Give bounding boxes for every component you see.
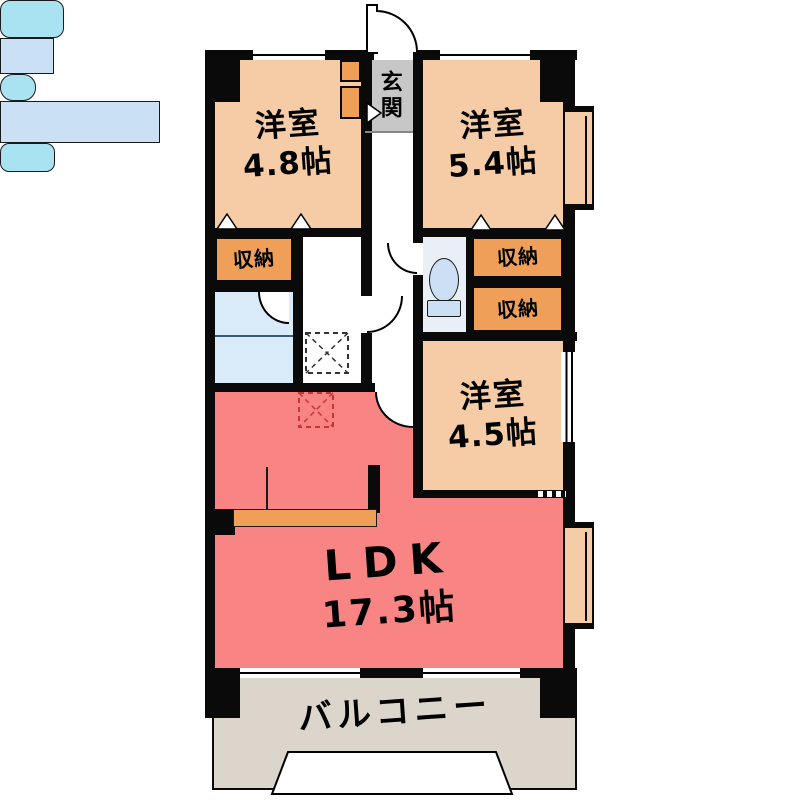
sliding-opening-marker <box>538 491 566 497</box>
closet-label: 収納 <box>472 286 563 332</box>
room-size: 17.3帖 <box>320 584 458 638</box>
bay-cap <box>563 204 594 210</box>
pipe-space-marker <box>297 391 335 429</box>
window-balcony-right <box>423 668 520 678</box>
entrance-door-arc <box>376 10 418 52</box>
closet-label: 収納 <box>472 237 563 278</box>
bay-window-glass-line <box>585 116 587 204</box>
bathtub-icon <box>0 0 64 38</box>
bedroom-1-label: 洋室 4.8帖 <box>215 70 361 220</box>
bay-window-bedroom-2 <box>563 110 594 210</box>
wall-segment <box>413 50 423 340</box>
toilet-icon <box>429 258 459 302</box>
bay-window-ldk <box>563 526 594 627</box>
bathroom-divider <box>215 335 293 337</box>
entrance-step-line <box>365 131 413 133</box>
room-name: 洋室 <box>254 104 323 147</box>
window-balcony-left <box>240 668 360 678</box>
room-name: 洋室 <box>459 104 528 147</box>
washing-machine-pan-icon <box>304 331 350 375</box>
bay-window-glass-line <box>585 532 587 621</box>
bay-cap <box>563 106 594 112</box>
wall-segment <box>563 625 575 668</box>
room-size: 4.8帖 <box>242 142 334 187</box>
bay-cap <box>563 522 594 528</box>
wall-segment <box>413 341 423 498</box>
bedroom-3-label: 洋室 4.5帖 <box>423 348 563 484</box>
room-name: 洋室 <box>459 375 528 418</box>
kitchen-wall-stub <box>368 465 380 513</box>
room-name: LDK <box>322 532 456 593</box>
sink-icon <box>0 74 36 101</box>
window-top-left <box>253 50 325 60</box>
room-size: 5.4帖 <box>447 142 539 187</box>
wall-segment <box>293 228 303 392</box>
bay-cap <box>563 623 594 629</box>
kitchen-sink-icon <box>0 143 55 172</box>
entrance-label: 玄関 <box>365 60 413 131</box>
closet-label: 収納 <box>215 237 293 282</box>
wall-segment <box>466 278 563 286</box>
ldk-label: LDK 17.3帖 <box>215 520 563 650</box>
wall-segment <box>563 50 575 112</box>
window-top-right <box>440 50 530 60</box>
washbasin-panel <box>0 38 54 74</box>
wall-segment <box>360 668 423 678</box>
balcony-notch <box>266 748 518 796</box>
floor-plan: 洋室 4.8帖 洋室 5.4帖 洋室 4.5帖 LDK 17.3帖 玄関 収納 … <box>0 0 800 800</box>
wall-segment <box>205 282 303 292</box>
kitchen-counter <box>0 101 160 143</box>
balcony-label: バルコニー <box>240 685 550 740</box>
kitchen-counter-divider <box>266 467 268 509</box>
room-size: 4.5帖 <box>447 413 539 458</box>
toilet-tank <box>427 300 461 317</box>
door-opening <box>375 383 413 392</box>
wall-segment <box>205 383 375 392</box>
wall-segment <box>563 442 575 528</box>
wall-segment <box>413 332 577 341</box>
bedroom-2-label: 洋室 5.4帖 <box>423 70 563 220</box>
window-bedroom-3 <box>561 352 577 442</box>
entrance-name: 玄関 <box>375 70 403 122</box>
wall-corner-block <box>205 668 240 718</box>
